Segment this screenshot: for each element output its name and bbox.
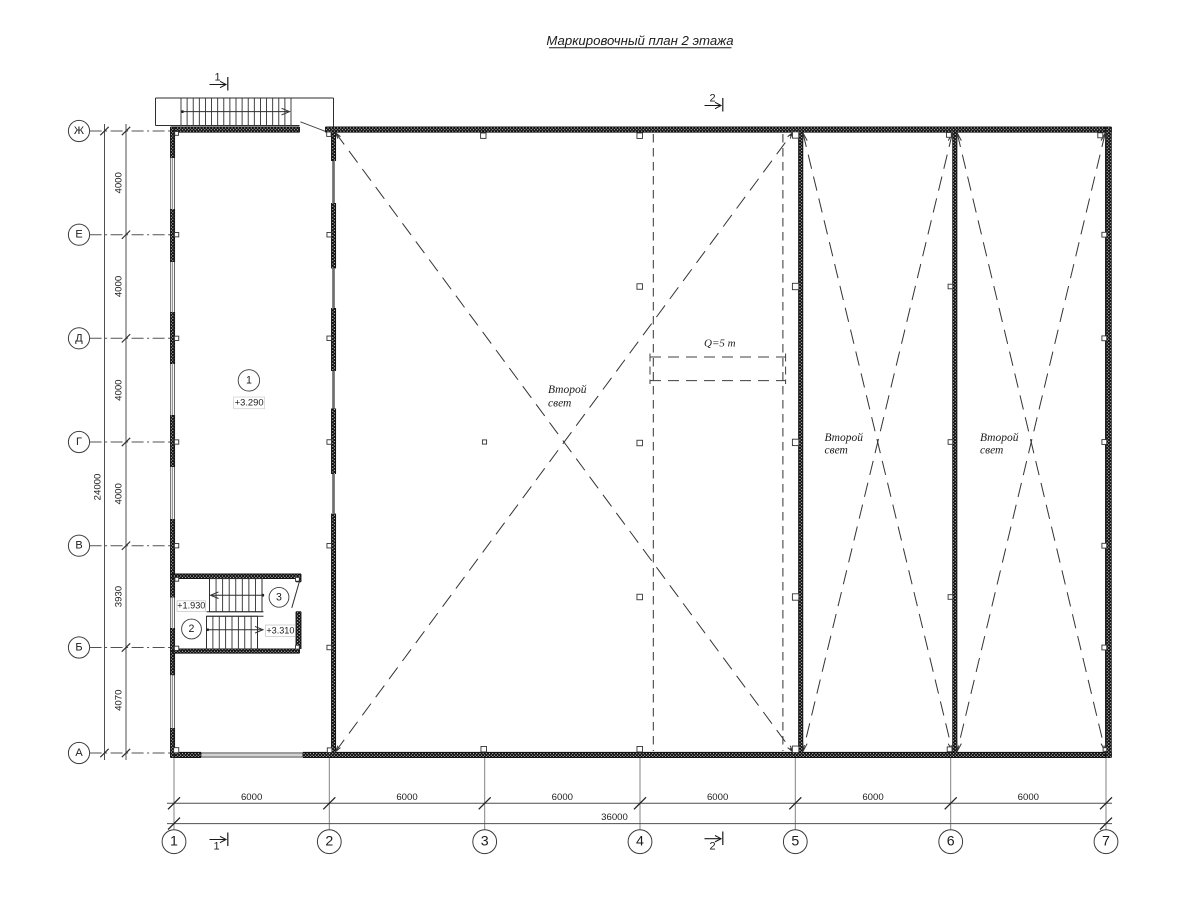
svg-text:свет: свет	[980, 445, 1003, 457]
svg-text:6000: 6000	[862, 792, 883, 803]
svg-text:2: 2	[709, 841, 715, 853]
svg-text:+1.930: +1.930	[177, 601, 205, 611]
svg-text:В: В	[75, 540, 82, 552]
svg-text:4000: 4000	[114, 276, 125, 297]
svg-text:7: 7	[1102, 834, 1110, 850]
svg-text:2: 2	[709, 93, 715, 105]
svg-text:Q=5 т: Q=5 т	[704, 338, 736, 350]
svg-text:+3.310: +3.310	[266, 625, 294, 635]
svg-text:6000: 6000	[241, 792, 262, 803]
svg-text:1: 1	[214, 72, 220, 84]
svg-text:3930: 3930	[114, 586, 125, 607]
svg-text:6: 6	[947, 834, 955, 850]
svg-text:Е: Е	[75, 229, 82, 241]
svg-text:1: 1	[246, 374, 252, 386]
svg-text:2: 2	[325, 834, 333, 850]
svg-text:4070: 4070	[114, 690, 125, 711]
svg-text:Г: Г	[76, 436, 82, 448]
svg-text:3: 3	[276, 591, 282, 603]
svg-text:5: 5	[791, 834, 799, 850]
svg-text:Д: Д	[75, 332, 83, 344]
svg-text:6000: 6000	[396, 792, 417, 803]
svg-text:4: 4	[636, 834, 644, 850]
svg-text:6000: 6000	[707, 792, 728, 803]
svg-text:Второй: Второй	[980, 431, 1019, 444]
svg-text:А: А	[75, 747, 83, 759]
svg-text:свет: свет	[825, 445, 848, 457]
svg-text:+3.290: +3.290	[235, 397, 264, 408]
svg-text:24000: 24000	[93, 474, 104, 501]
svg-text:4000: 4000	[114, 483, 125, 504]
svg-text:1: 1	[213, 841, 219, 853]
svg-text:Второй: Второй	[548, 383, 587, 396]
svg-text:Второй: Второй	[825, 431, 864, 444]
svg-text:6000: 6000	[552, 792, 573, 803]
svg-text:4000: 4000	[114, 379, 125, 400]
svg-text:4000: 4000	[114, 172, 125, 193]
svg-text:Ж: Ж	[74, 125, 84, 137]
svg-text:1: 1	[170, 834, 178, 850]
svg-text:3: 3	[481, 834, 489, 850]
svg-text:Б: Б	[75, 642, 82, 654]
svg-text:Маркировочный план 2 этажа: Маркировочный план 2 этажа	[546, 33, 733, 48]
svg-text:36000: 36000	[601, 812, 628, 823]
svg-text:2: 2	[189, 623, 195, 635]
svg-text:свет: свет	[548, 398, 571, 410]
svg-text:6000: 6000	[1018, 792, 1039, 803]
